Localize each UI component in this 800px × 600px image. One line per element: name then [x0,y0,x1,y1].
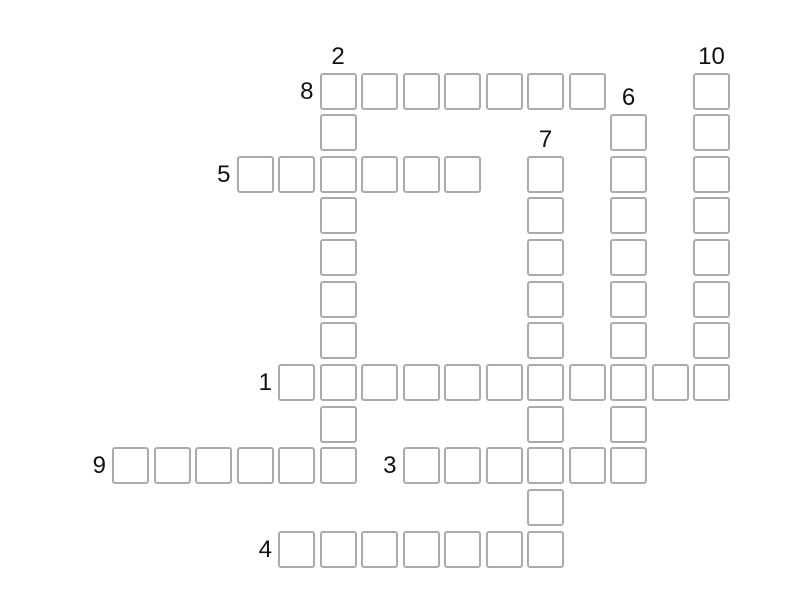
crossword-grid: 12345678910 [0,0,800,600]
crossword-cell[interactable] [527,239,564,276]
crossword-cell[interactable] [569,364,606,401]
crossword-cell[interactable] [444,156,481,193]
crossword-cell[interactable] [693,364,730,401]
crossword-cell[interactable] [527,73,564,110]
crossword-cell[interactable] [610,447,647,484]
crossword-cell[interactable] [693,281,730,318]
crossword-cell[interactable] [610,197,647,234]
crossword-cell[interactable] [278,156,315,193]
crossword-cell[interactable] [320,281,357,318]
clue-number-7-down: 7 [511,126,581,154]
crossword-cell[interactable] [278,364,315,401]
crossword-cell[interactable] [527,364,564,401]
crossword-cell[interactable] [486,447,523,484]
crossword-cell[interactable] [361,156,398,193]
crossword-cell[interactable] [320,239,357,276]
clue-number-10-down: 10 [677,43,747,71]
crossword-cell[interactable] [444,447,481,484]
crossword-cell[interactable] [278,531,315,568]
crossword-cell[interactable] [527,489,564,526]
crossword-cell[interactable] [112,447,149,484]
crossword-cell[interactable] [610,239,647,276]
crossword-cell[interactable] [527,531,564,568]
crossword-cell[interactable] [320,114,357,151]
crossword-cell[interactable] [403,447,440,484]
crossword-cell[interactable] [361,531,398,568]
clue-number-3-across: 3 [327,447,397,484]
clue-number-2-down: 2 [303,43,373,71]
crossword-cell[interactable] [610,322,647,359]
crossword-cell[interactable] [610,156,647,193]
crossword-cell[interactable] [527,281,564,318]
crossword-cell[interactable] [527,197,564,234]
crossword-cell[interactable] [610,406,647,443]
crossword-cell[interactable] [320,156,357,193]
crossword-cell[interactable] [569,447,606,484]
crossword-cell[interactable] [237,156,274,193]
clue-number-5-across: 5 [161,156,231,193]
crossword-cell[interactable] [527,406,564,443]
crossword-cell[interactable] [486,364,523,401]
crossword-cell[interactable] [527,322,564,359]
crossword-cell[interactable] [444,531,481,568]
crossword-cell[interactable] [403,364,440,401]
crossword-cell[interactable] [652,364,689,401]
clue-number-9-across: 9 [36,447,106,484]
crossword-cell[interactable] [610,281,647,318]
crossword-cell[interactable] [278,447,315,484]
crossword-cell[interactable] [320,531,357,568]
crossword-cell[interactable] [693,156,730,193]
crossword-cell[interactable] [527,447,564,484]
crossword-cell[interactable] [320,322,357,359]
crossword-cell[interactable] [693,73,730,110]
crossword-cell[interactable] [320,364,357,401]
crossword-cell[interactable] [320,406,357,443]
crossword-cell[interactable] [361,73,398,110]
clue-number-1-across: 1 [202,364,272,401]
crossword-cell[interactable] [195,447,232,484]
crossword-cell[interactable] [693,114,730,151]
crossword-cell[interactable] [610,114,647,151]
crossword-cell[interactable] [693,322,730,359]
crossword-cell[interactable] [320,197,357,234]
crossword-cell[interactable] [693,239,730,276]
crossword-cell[interactable] [361,364,398,401]
clue-number-8-across: 8 [244,73,314,110]
crossword-cell[interactable] [403,73,440,110]
crossword-cell[interactable] [403,531,440,568]
crossword-cell[interactable] [403,156,440,193]
crossword-cell[interactable] [154,447,191,484]
crossword-cell[interactable] [486,73,523,110]
crossword-cell[interactable] [569,73,606,110]
crossword-cell[interactable] [693,197,730,234]
crossword-cell[interactable] [486,531,523,568]
crossword-cell[interactable] [444,73,481,110]
crossword-cell[interactable] [610,364,647,401]
crossword-cell[interactable] [527,156,564,193]
crossword-cell[interactable] [444,364,481,401]
clue-number-4-across: 4 [202,531,272,568]
crossword-cell[interactable] [320,73,357,110]
crossword-cell[interactable] [237,447,274,484]
